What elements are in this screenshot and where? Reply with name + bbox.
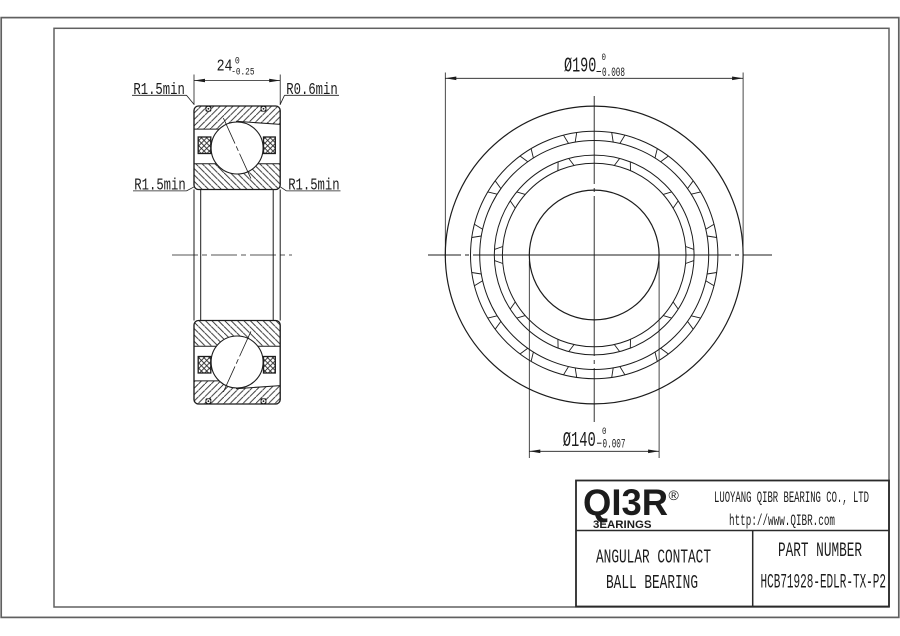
- svg-text:®: ®: [669, 487, 680, 503]
- svg-text:BALL BEARING: BALL BEARING: [606, 572, 698, 594]
- svg-text:Ø140: Ø140: [563, 430, 596, 453]
- svg-text:ANGULAR CONTACT: ANGULAR CONTACT: [596, 547, 711, 569]
- svg-text:3EARINGS: 3EARINGS: [593, 519, 652, 531]
- svg-text:HCB71928-EDLR-TX-P2: HCB71928-EDLR-TX-P2: [761, 572, 887, 595]
- svg-text:R1.5min: R1.5min: [288, 176, 339, 195]
- svg-text:R1.5min: R1.5min: [134, 176, 185, 195]
- svg-text:24: 24: [217, 58, 233, 77]
- svg-text:0.007: 0.007: [603, 437, 626, 452]
- svg-text:-0.25: -0.25: [231, 67, 254, 78]
- svg-text:0.008: 0.008: [602, 65, 625, 80]
- svg-text:R0.6min: R0.6min: [286, 81, 337, 100]
- svg-text:PART NUMBER: PART NUMBER: [778, 540, 862, 563]
- svg-text:0: 0: [602, 53, 607, 64]
- svg-text:QI3R: QI3R: [583, 482, 668, 523]
- svg-text:LUOYANG QIBR BEARING CO., LTD: LUOYANG QIBR BEARING CO., LTD: [714, 489, 869, 507]
- svg-text:Ø190: Ø190: [564, 56, 596, 79]
- svg-text:http://www.QIBR.com: http://www.QIBR.com: [729, 512, 835, 530]
- svg-text:0: 0: [235, 56, 240, 67]
- svg-text:R1.5min: R1.5min: [133, 81, 184, 100]
